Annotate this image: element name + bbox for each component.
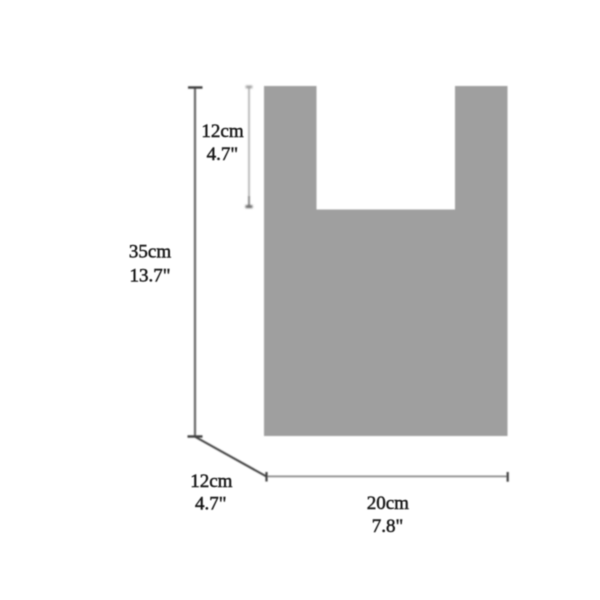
svg-text:35cm: 35cm [129,241,171,262]
svg-text:4.7": 4.7" [207,144,239,165]
svg-text:12cm: 12cm [201,121,243,142]
svg-text:4.7": 4.7" [195,494,227,515]
svg-text:13.7": 13.7" [129,265,170,286]
svg-text:7.8": 7.8" [372,516,404,537]
svg-text:12cm: 12cm [190,471,232,492]
svg-text:20cm: 20cm [367,493,409,514]
